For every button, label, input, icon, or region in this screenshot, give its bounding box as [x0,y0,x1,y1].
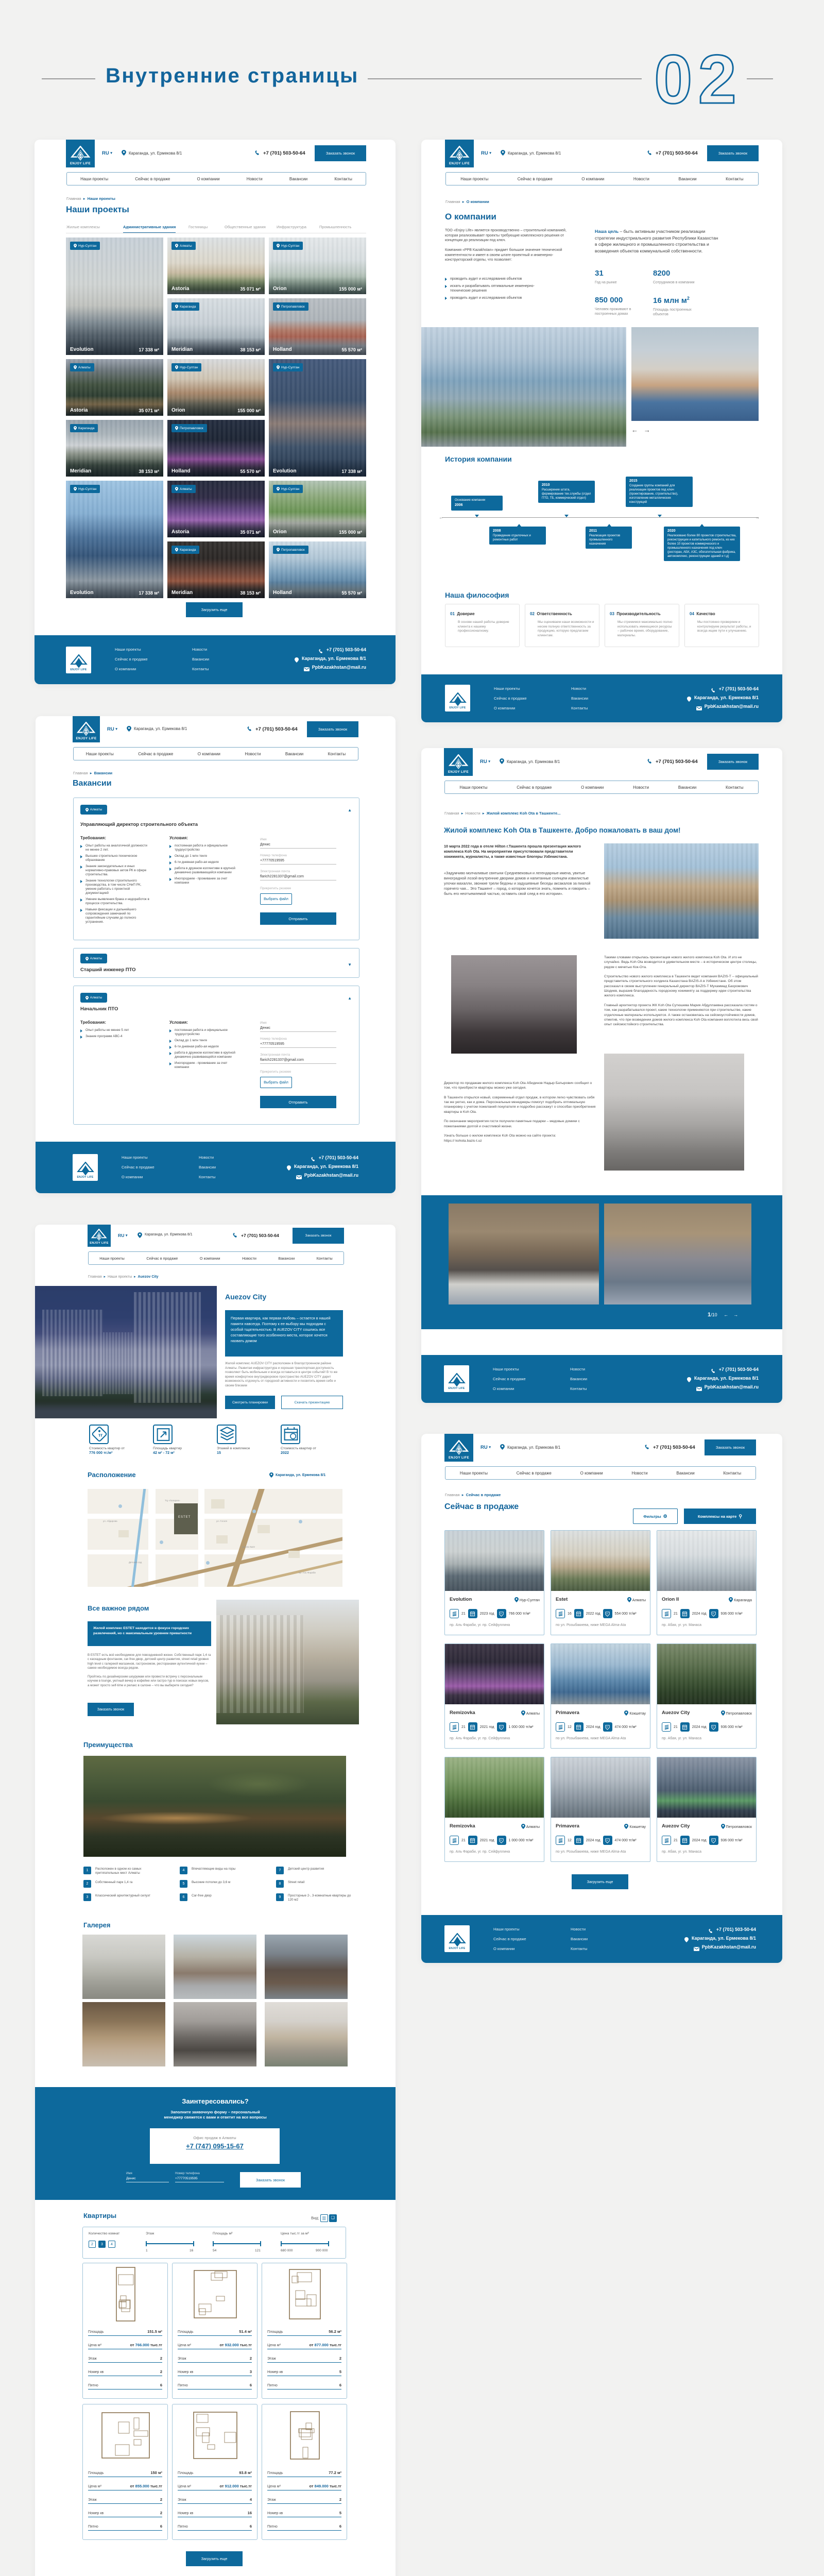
svg-text:тг: тг [606,1612,608,1615]
svg-text:BAZIS: BAZIS [455,764,461,766]
svg-text:тг: тг [712,1612,714,1615]
svg-text:BAZIS: BAZIS [97,1236,101,1238]
svg-text:тг: тг [500,1612,502,1615]
svg-text:BAZIS: BAZIS [454,1381,460,1383]
svg-text:BAZIS: BAZIS [455,701,461,703]
svg-text:BAZIS: BAZIS [83,731,89,733]
svg-text:BAZIS: BAZIS [455,1941,460,1943]
svg-text:тг: тг [712,1725,714,1728]
svg-text:тг: тг [606,1839,608,1841]
svg-text:BAZIS: BAZIS [456,155,462,157]
svg-text:BAZIS: BAZIS [456,1449,462,1451]
svg-text:BAZIS: BAZIS [76,663,82,665]
svg-text:BAZIS: BAZIS [77,155,83,157]
svg-text:тг: тг [500,1839,502,1841]
svg-text:тг: тг [98,1433,103,1438]
svg-text:тг: тг [712,1839,714,1841]
svg-text:тг: тг [606,1725,608,1728]
svg-text:тг: тг [500,1725,502,1728]
svg-text:BAZIS: BAZIS [83,1170,89,1172]
